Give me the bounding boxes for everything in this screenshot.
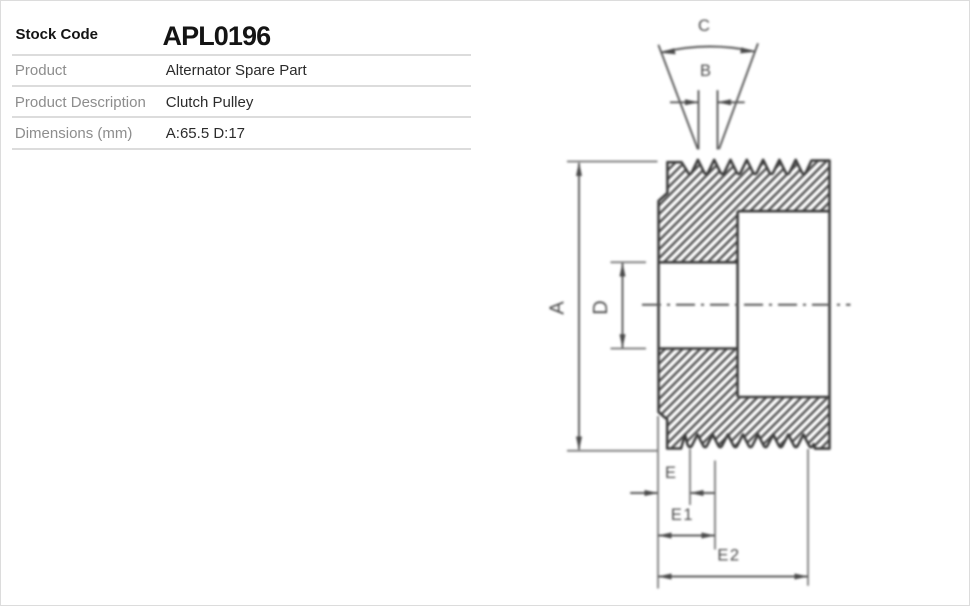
svg-text:E: E [665, 464, 676, 482]
svg-text:A: A [546, 301, 568, 315]
svg-text:E2: E2 [717, 547, 740, 565]
svg-text:D: D [590, 300, 612, 314]
svg-text:B: B [700, 62, 711, 80]
svg-text:C: C [698, 17, 710, 35]
svg-text:E1: E1 [671, 506, 694, 524]
